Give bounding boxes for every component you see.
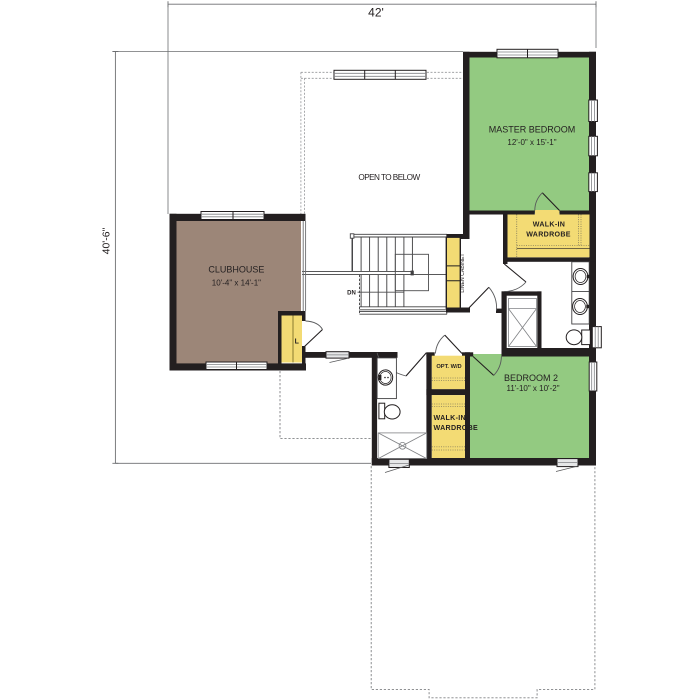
svg-text:WARDROBE: WARDROBE: [434, 424, 479, 432]
svg-text:OPT. W/D: OPT. W/D: [436, 364, 461, 370]
svg-text:11'-10" x 10'-2": 11'-10" x 10'-2": [506, 384, 559, 393]
svg-text:12'-0" x 15'-1": 12'-0" x 15'-1": [507, 138, 556, 147]
svg-text:OPEN TO BELOW: OPEN TO BELOW: [358, 173, 420, 182]
svg-text:BEDROOM 2: BEDROOM 2: [504, 373, 558, 383]
svg-text:CLUBHOUSE: CLUBHOUSE: [208, 265, 264, 275]
svg-text:WARDROBE: WARDROBE: [526, 231, 571, 239]
svg-text:DN: DN: [347, 290, 356, 296]
svg-text:WALK-IN: WALK-IN: [434, 414, 466, 422]
svg-text:42': 42': [368, 6, 384, 20]
svg-text:L: L: [295, 339, 300, 346]
svg-text:LINEN CABINET: LINEN CABINET: [460, 253, 466, 293]
svg-text:10'-4" x 14'-1": 10'-4" x 14'-1": [212, 279, 261, 288]
svg-text:MASTER BEDROOM: MASTER BEDROOM: [489, 125, 576, 135]
svg-text:WALK-IN: WALK-IN: [533, 220, 565, 228]
svg-text:40'-6": 40'-6": [101, 227, 113, 254]
